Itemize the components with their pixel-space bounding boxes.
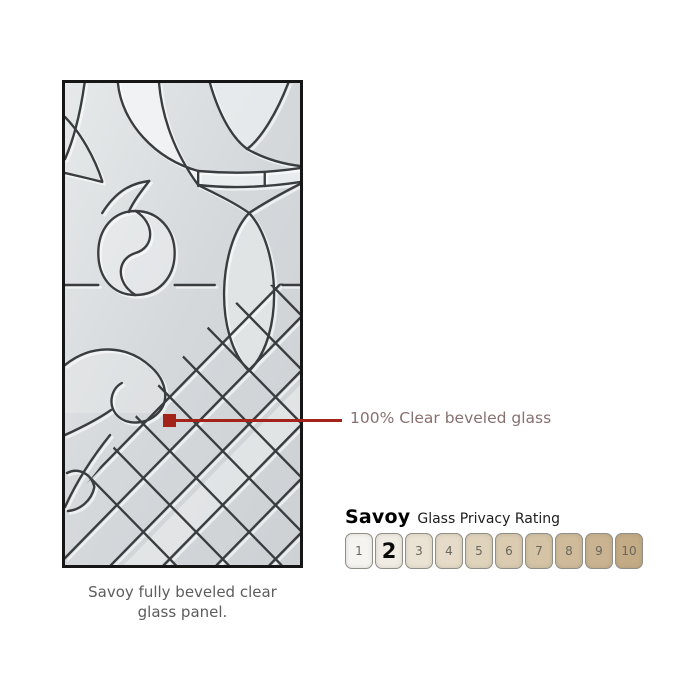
privacy-scale-5: 5 (465, 533, 493, 569)
privacy-rating-header: Savoy Glass Privacy Rating (345, 506, 560, 528)
privacy-scale-2: 2 (375, 533, 403, 569)
panel-caption: Savoy fully beveled clear glass panel. (52, 583, 313, 623)
privacy-scale-3: 3 (405, 533, 433, 569)
privacy-scale-4: 4 (435, 533, 463, 569)
panel-caption-line1: Savoy fully beveled clear (52, 583, 313, 603)
privacy-scale-8: 8 (555, 533, 583, 569)
privacy-scale-7: 7 (525, 533, 553, 569)
privacy-scale-1: 1 (345, 533, 373, 569)
beveled-glass-pattern (65, 83, 300, 565)
product-name: Savoy (345, 506, 410, 528)
product-infographic: Savoy fully beveled clear glass panel. 1… (0, 0, 700, 700)
privacy-scale-6: 6 (495, 533, 523, 569)
callout-leader-line (175, 419, 342, 422)
privacy-rating-scale: 1 2 3 4 5 6 7 8 9 10 (345, 533, 643, 569)
privacy-scale-10: 10 (615, 533, 643, 569)
privacy-scale-9: 9 (585, 533, 613, 569)
privacy-rating-title: Glass Privacy Rating (417, 511, 560, 527)
panel-caption-line2: glass panel. (52, 603, 313, 623)
glass-panel-image (62, 80, 303, 568)
callout-label: 100% Clear beveled glass (350, 409, 551, 427)
